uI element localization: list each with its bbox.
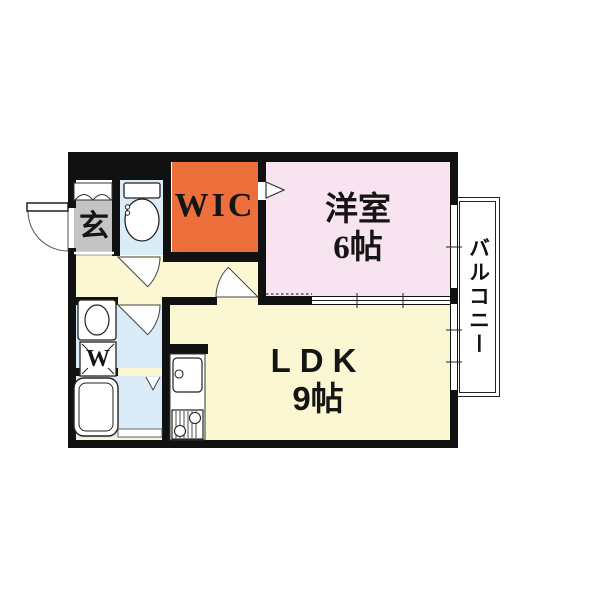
western-room-size: 6帖 xyxy=(266,230,450,268)
wic-label: WIC xyxy=(172,186,258,225)
floor-plan: バルコニー xyxy=(0,0,600,600)
bathtub-icon xyxy=(74,378,162,437)
kitchen-sink-icon xyxy=(173,358,202,392)
western-room-label: 洋室 6帖 xyxy=(266,192,450,268)
genkan-label: 玄 xyxy=(74,210,114,245)
western-room-name: 洋室 xyxy=(266,192,450,230)
ldk-size: 9帖 xyxy=(218,380,418,418)
washroom-door-arc xyxy=(118,305,160,335)
stove-icon xyxy=(172,410,203,439)
entrance-door-arc xyxy=(27,203,68,251)
washing-machine-label: W xyxy=(80,346,116,374)
bathroom-folding-door xyxy=(146,377,160,390)
kitchen-counter xyxy=(170,354,205,440)
toilet-icon xyxy=(124,183,160,241)
ldk-name: LDK xyxy=(218,342,418,380)
ldk-label: LDK 9帖 xyxy=(218,342,418,418)
fixtures-layer xyxy=(0,0,600,600)
ldk-door-arc xyxy=(216,267,258,297)
washbasin-icon xyxy=(78,300,116,340)
toilet-door-arc xyxy=(118,257,160,287)
